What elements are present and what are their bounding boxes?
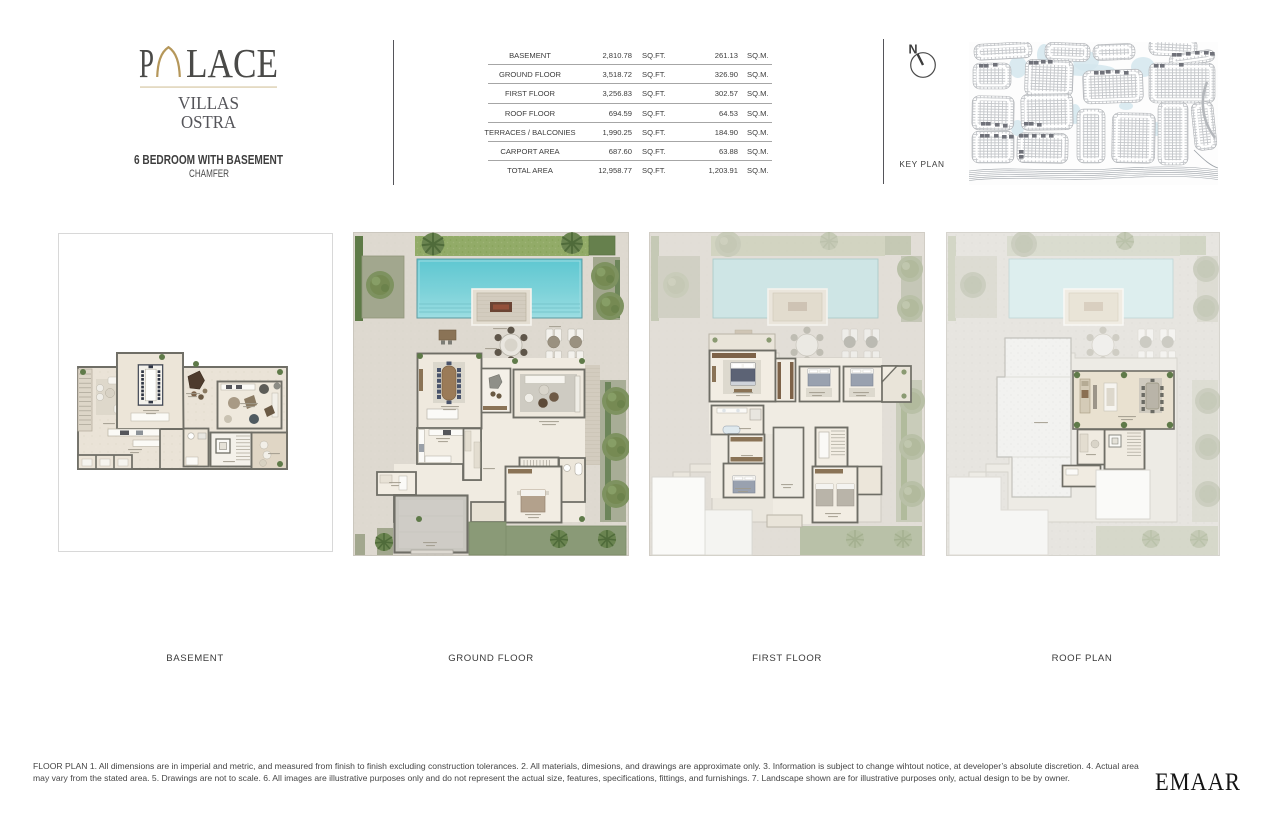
svg-text:LACE: LACE [186, 40, 278, 86]
svg-text:CHAMFER: CHAMFER [189, 168, 229, 180]
svg-text:P: P [139, 40, 154, 86]
svg-text:6 BEDROOM WITH BASEMENT: 6 BEDROOM WITH BASEMENT [134, 153, 283, 167]
svg-text:OSTRA: OSTRA [181, 112, 237, 132]
svg-text:VILLAS: VILLAS [178, 93, 239, 113]
